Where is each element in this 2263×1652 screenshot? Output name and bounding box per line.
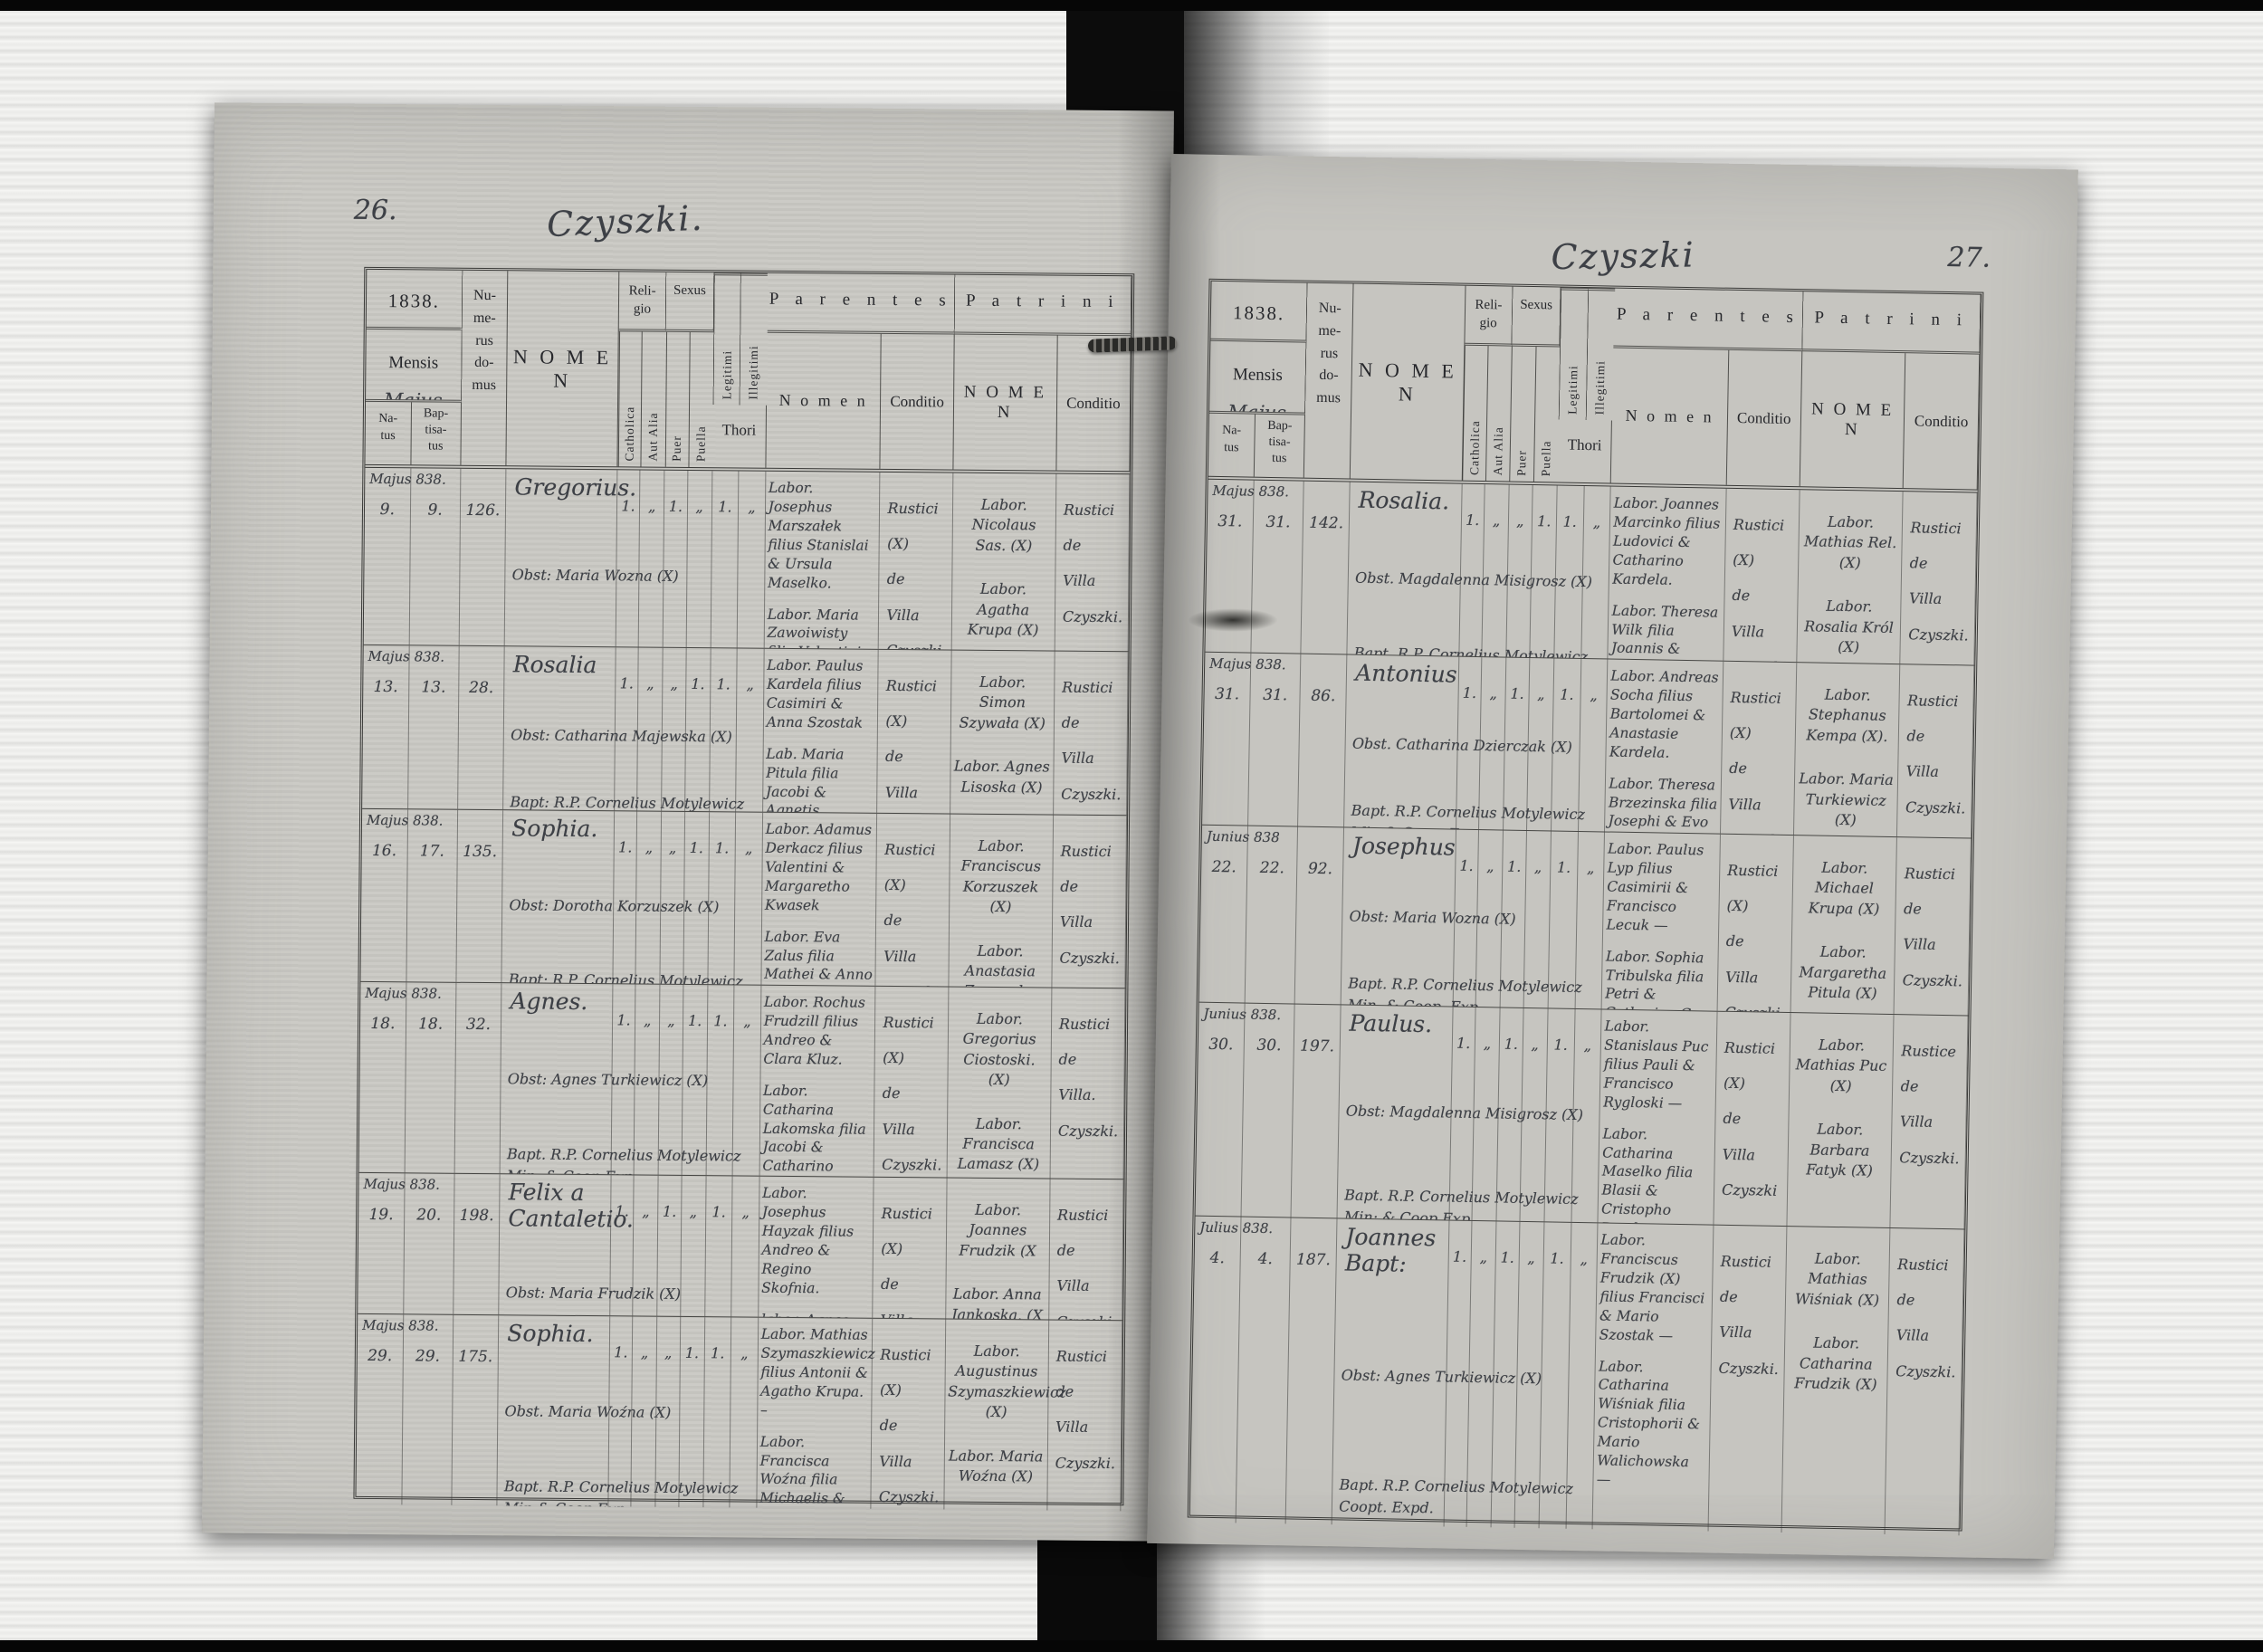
baptisatus-day-cell: 20. [403, 1173, 454, 1321]
book-spine-bottom-shadow [1157, 1526, 1265, 1652]
patrini-nomen-header: N O M E N [1800, 351, 1905, 488]
patrini-conditio-cell: Rustici de Villa Czyszki. [1886, 1228, 1964, 1535]
house-number-cell: 135. [456, 810, 504, 988]
mensis-value-handwritten: Majus [377, 389, 450, 403]
natus-day-cell: 30. [1196, 1003, 1246, 1230]
house-number-cell: 175. [452, 1315, 500, 1511]
puer-header: Puer [665, 332, 690, 467]
aut-alia-header: Aut Alia [1485, 346, 1513, 481]
nomen-cell: Sophia. Obst: Dorotha Korzuszek (X) Bapt… [501, 810, 615, 988]
tick-legitimi: 1. [711, 471, 740, 652]
baptisatus-day-cell: 29. [402, 1314, 454, 1511]
mensis-header: Mensis Majus [366, 329, 462, 403]
nomen-cell: Paulus. Obst: Magdalenna Misigrosz (X) B… [1337, 1005, 1453, 1229]
child-name: Rosalia [508, 648, 613, 679]
mensis-label: Mensis [1210, 365, 1306, 387]
child-name: Felix a Cantaletio. [502, 1176, 607, 1233]
religio-header: Reli- gio [1465, 286, 1513, 347]
patrini-conditio-cell: Rustici de Villa Czyszki. [1895, 837, 1972, 1016]
father-entry: Labor. Franciscus Frudzik (X) filius Fra… [1599, 1230, 1710, 1346]
scan-bottom-edge [0, 1640, 2263, 1652]
natus-day-cell: 18. [359, 982, 407, 1179]
table-header: 1838. Mensis Majus Na- tus Bap- tisa- tu… [1208, 282, 1981, 493]
illegitimi-header: Illegitimi [740, 272, 768, 405]
father-entry: Labor. Mathias Szymaszkiewicz filius Ant… [760, 1325, 870, 1421]
natus-day-cell: 4. [1190, 1217, 1242, 1523]
midwife-entry: Obst: Agnes Turkiewicz (X) [1338, 1367, 1584, 1389]
godparent-2: Labor. Maria Woźna (X) [947, 1446, 1044, 1487]
godparent-2: Labor. Rosalia Król (X) [1800, 596, 1898, 658]
child-name: Agnes. [504, 985, 609, 1016]
parentes-header: P a r e n t e s [767, 273, 955, 335]
month-year-entry: Majus 838. [363, 1176, 509, 1193]
father-entry: Labor. Andreas Socha filius Bartolomei &… [1609, 667, 1720, 764]
house-number-cell: 142. [1301, 482, 1351, 666]
patrini-conditio-cell: Rustici de Villa Czyszki. [1055, 474, 1130, 653]
baptisatus-day-cell: 22. [1245, 826, 1298, 1017]
nomen-cell: Sophia. Obst. Maria Woźna (X) Bapt. R.P.… [497, 1315, 610, 1511]
religio-header: Reli- gio [619, 272, 667, 331]
parentes-nomen-cell: Labor. Paulus Kardela filius Casimiri & … [762, 649, 879, 816]
midwife-entry: Obst: Maria Frudzik (X) [502, 1284, 747, 1303]
page-number-right: 27. [1947, 242, 1991, 274]
natus-day-cell: 29. [356, 1314, 404, 1511]
tick-illegitimi: „ [737, 471, 766, 652]
godparent-1: Labor. Nicolaus Sas. (X) [955, 495, 1053, 557]
godparent-2: Labor. Agatha Krupa (X) [954, 579, 1052, 641]
child-name: Joannes Bapt: [1340, 1220, 1446, 1278]
house-number-cell: 197. [1291, 1005, 1341, 1230]
parentes-nomen-header: N o m e n [766, 333, 882, 469]
patrini-conditio-cell: Rustici de Villa. Czyszki. [1050, 988, 1125, 1180]
baptism-record-row: Majus 838. 29. 29. 175. Sophia. Obst. Ma… [356, 1314, 1122, 1511]
patrini-nomen-cell: Labor. Stephanus Kempa (X). Labor. Maria… [1793, 663, 1901, 838]
godparent-1: Labor. Simon Szywała (X) [954, 673, 1052, 734]
father-entry: Labor. Josephus Marszałek filius Stanisl… [768, 479, 877, 594]
baptisatus-day-cell: 31. [1251, 481, 1304, 666]
godparent-1: Labor. Mathias Puc (X) [1792, 1035, 1891, 1097]
patrini-nomen-cell: Labor. Mathias Rel. (X) Labor. Rosalia K… [1796, 490, 1904, 665]
godparent-1: Labor. Franciscus Korzuszek (X) [952, 836, 1050, 918]
register-page-left: 26. Czyszki. 1838. Mensis Majus Na- tus … [202, 102, 1174, 1541]
puella-header: Puella [1533, 347, 1560, 482]
midwife-entry: Obst. Magdalenna Misigrosz (X) [1351, 569, 1598, 591]
baptism-record-row: Majus 838. 19. 20. 198. Felix a Cantalet… [358, 1173, 1123, 1321]
midwife-entry: Obst: Catharina Majewska (X) [507, 726, 751, 745]
catholica-header: Catholica [617, 331, 642, 466]
parentes-conditio-cell: Rustici (X) de Villa Czyszki. [874, 987, 949, 1179]
baptisatus-day-cell: 17. [406, 809, 458, 988]
patrini-nomen-cell: Labor. Gregorius Ciostoski. (X) Labor. F… [947, 988, 1052, 1180]
mother-entry: Labor. Maria Zawoiwisty filia Valentini … [767, 605, 876, 652]
godparent-2: Labor. Barbara Fatyk (X) [1790, 1119, 1889, 1181]
patrini-conditio-cell: Rustici de Villa Czyszki. [1897, 664, 1974, 838]
parentes-conditio-cell: Rustici (X) de Villa Czyszki [1714, 1012, 1790, 1230]
month-year-entry: Majus 838. [367, 812, 512, 829]
godparent-1: Labor. Augustinus Szymaszkiewicz (X) [948, 1342, 1046, 1423]
child-name: Antonius [1350, 657, 1456, 689]
baptism-record-row: Julius 838. 4. 4. 187. Joannes Bapt: Obs… [1190, 1217, 1965, 1536]
register-page-right: 27. Czyszki 1838. Mensis Majus Na- tus B… [1147, 154, 2078, 1559]
parentes-conditio-cell: Rustici (X) de Villa Czyszki. [1717, 835, 1794, 1017]
baptisatus-day-cell: 30. [1241, 1004, 1295, 1230]
nomen-cell: Josephus Obst: Maria Wozna (X) Bapt. R.P… [1342, 827, 1456, 1016]
month-year-entry: Majus 838. [365, 985, 511, 1002]
child-name: Sophia. [501, 1317, 606, 1348]
midwife-entry: Obst: Maria Wozna (X) [509, 566, 753, 585]
nomen-cell: Antonius Obst. Catharina Dzierczak (X) B… [1344, 654, 1459, 838]
month-year-entry: Julius 838. [1199, 1219, 1346, 1238]
numerus-domus-header: Nu- me- rus do- mus [1304, 283, 1354, 479]
baptisatus-day-cell: 13. [407, 645, 459, 816]
baptism-record-row: Majus 838. 9. 9. 126. Gregorius. Obst: M… [364, 468, 1131, 652]
patrini-nomen-cell: Labor. Mathias Puc (X) Labor. Barbara Fa… [1787, 1013, 1895, 1229]
parentes-conditio-cell: Rustici (X) de Villa Czyszki. [1723, 489, 1800, 666]
nomen-header: N O M E N [507, 271, 619, 466]
month-year-entry: Majus 838. [1212, 482, 1359, 501]
father-entry: Labor. Joannes Marcinko filius Ludovici … [1612, 494, 1723, 591]
baptism-record-row: Junius 838. 30. 30. 197. Paulus. Obst: M… [1196, 1003, 1969, 1230]
house-number-cell: 187. [1286, 1218, 1338, 1524]
patrini-nomen-header: N O M E N [953, 335, 1057, 471]
parentes-conditio-header: Conditio [881, 334, 955, 470]
patrini-nomen-cell: Labor. Franciscus Korzuszek (X) Labor. A… [949, 815, 1054, 989]
patrini-conditio-header: Conditio [1904, 353, 1980, 489]
baptism-record-row: Majus 838. 31. 31. 86. Antonius Obst. Ca… [1202, 653, 1974, 839]
records-right: Majus 838. 31. 31. 142. Rosalia. Obst. M… [1190, 480, 1978, 1536]
baptizer-entry: Bapt. R.P. Cornelius Motylewicz Coopt. E… [1335, 1474, 1613, 1522]
ink-smudge [1188, 608, 1278, 632]
midwife-entry: Obst: Dorotha Korzuszek (X) [505, 897, 750, 916]
midwife-entry: Obst. Catharina Dzierczak (X) [1349, 734, 1595, 756]
patrini-nomen-cell: Labor. Mathias Wiśniak (X) Labor. Cathar… [1781, 1227, 1891, 1534]
natus-header: Na- tus [1208, 414, 1256, 477]
parentes-conditio-header: Conditio [1727, 350, 1802, 486]
patrini-conditio-cell: Rustici de Villa Czyszki. [1054, 652, 1129, 816]
child-name: Rosalia. [1352, 484, 1458, 516]
mensis-label: Mensis [366, 353, 461, 374]
patrini-nomen-cell: Labor. Joannes Frudzik (X Labor. Anna Ja… [945, 1179, 1050, 1322]
baptisatus-day-cell: 9. [409, 468, 461, 652]
patrini-header: P a t r i n i [954, 275, 1131, 337]
child-name: Sophia. [506, 812, 611, 843]
scan-top-edge [0, 0, 2263, 11]
godparent-2: Labor. Maria Turkiewicz (X) [1797, 769, 1895, 831]
thori-header: Thori [712, 405, 767, 468]
page-title-left: Czyszki. [546, 198, 704, 245]
nomen-cell: Joannes Bapt: Obst: Agnes Turkiewicz (X)… [1332, 1218, 1449, 1526]
month-year-entry: Junius 838. [1203, 1006, 1350, 1025]
child-name: Josephus [1347, 830, 1453, 862]
child-name: Paulus. [1343, 1007, 1449, 1038]
sexus-header: Sexus [1513, 287, 1561, 348]
godparent-2: Labor. Francisca Lamasz (X) [950, 1113, 1047, 1175]
tick-puer: 1. [663, 471, 688, 652]
baptism-record-row: Junius 838 22. 22. 92. Josephus Obst: Ma… [1199, 826, 1972, 1017]
mensis-header: Mensis Majus [1209, 341, 1307, 415]
godparent-1: Labor. Joannes Frudzik (X [949, 1200, 1046, 1262]
godparent-2: Labor. Catharina Frudzik (X) [1787, 1332, 1886, 1395]
nomen-header: N O M E N [1351, 284, 1466, 481]
house-number-cell: 92. [1295, 827, 1345, 1017]
month-year-entry: Majus 838. [362, 1317, 508, 1334]
page-number-left: 26. [354, 195, 397, 226]
godparent-1: Labor. Mathias Wiśniak (X) [1788, 1248, 1886, 1311]
baptisatus-day-cell: 18. [405, 982, 456, 1179]
house-number-cell: 32. [454, 983, 502, 1179]
sexus-header: Sexus [666, 272, 714, 332]
thori-header: Thori [1558, 420, 1613, 483]
aut-alia-header: Aut Alia [641, 332, 666, 467]
godparent-1: Labor. Mathias Rel. (X) [1801, 511, 1900, 574]
patrini-header: P a t r i n i [1802, 291, 1981, 354]
baptisatus-header: Bap- tisa- tus [1255, 415, 1305, 478]
book-spine-bottom [1037, 1526, 1157, 1652]
baptism-record-row: Majus 838. 31. 31. 142. Rosalia. Obst. M… [1205, 480, 1977, 666]
baptisatus-day-cell: 4. [1237, 1218, 1292, 1524]
nomen-cell: Rosalia Obst: Catharina Majewska (X) Bap… [503, 646, 616, 816]
natus-day-cell: 31. [1202, 653, 1251, 839]
patrini-nomen-cell: Labor. Nicolaus Sas. (X) Labor. Agatha K… [951, 473, 1056, 653]
numerus-domus-header: Nu- me- rus do- mus [461, 271, 509, 465]
midwife-entry: Obst: Agnes Turkiewicz (X) [504, 1071, 749, 1090]
month-year-entry: Majus 838. [369, 471, 515, 488]
midwife-entry: Obst: Magdalenna Misigrosz (X) [1342, 1102, 1589, 1123]
parentes-nomen-cell: Labor. Joannes Marcinko filius Ludovici … [1608, 487, 1727, 666]
puella-header: Puella [688, 332, 713, 467]
father-entry: Labor. Josephus Hayzak filius Andreo & R… [761, 1184, 871, 1299]
parentes-nomen-cell: Labor. Josephus Hayzak filius Andreo & R… [758, 1177, 874, 1322]
puer-header: Puer [1510, 347, 1535, 482]
year-header: 1838. [1210, 282, 1307, 343]
records-left: Majus 838. 9. 9. 126. Gregorius. Obst: M… [356, 468, 1130, 1511]
illegitimi-header: Illegitimi [1586, 288, 1615, 420]
godparent-1: Labor. Michael Krupa (X) [1795, 857, 1894, 920]
year-header: 1838. [367, 270, 463, 330]
mother-entry: Labor. Catharina Wiśniak filia Cristopho… [1597, 1357, 1708, 1492]
patrini-nomen-cell: Labor. Michael Krupa (X) Labor. Margaret… [1790, 836, 1898, 1016]
nomen-cell: Gregorius. Obst: Maria Wozna (X) Bapt. R… [504, 469, 617, 652]
natus-day-cell: 22. [1199, 826, 1248, 1017]
father-entry: Labor. Paulus Kardela filius Casimiri & … [767, 656, 875, 733]
parentes-conditio-cell: Rustici (X) de Villa Czyszki. [1720, 662, 1797, 839]
house-number-cell: 86. [1298, 654, 1348, 839]
father-entry: Labor. Paulus Lyp filius Casimirii & Fra… [1606, 840, 1716, 937]
baptisatus-header: Bap- tisa- tus [411, 402, 462, 464]
month-year-entry: Junius 838 [1207, 828, 1353, 847]
parentes-conditio-cell: Rustici (X) de Villa Czyszki. [872, 1319, 946, 1511]
midwife-entry: Obst. Maria Woźna (X) [501, 1403, 746, 1422]
patrini-conditio-cell: Rustice de Villa Czyszki. [1890, 1015, 1968, 1229]
father-entry: Labor. Rochus Frudzill filius Andreo & C… [763, 993, 872, 1070]
month-year-entry: Majus 838. [368, 648, 514, 665]
natus-day-cell: 16. [360, 809, 407, 988]
legitimi-header: Legitimi [1559, 288, 1588, 420]
patrini-nomen-cell: Labor. Simon Szywała (X) Labor. Agnes Li… [950, 651, 1055, 816]
godparent-2: Labor. Margaretha Pitula (X) [1793, 941, 1892, 1004]
godparent-2: Labor. Anna Jankoska. (X [949, 1284, 1046, 1322]
legitimi-header: Legitimi [713, 272, 741, 405]
parentes-nomen-cell: Labor. Adamus Derkacz filius Valentini &… [761, 813, 878, 989]
natus-header: Na- tus [365, 402, 411, 464]
tick-puella: „ [686, 471, 712, 652]
house-number-cell: 126. [459, 469, 507, 652]
catholica-header: Catholica [1462, 346, 1487, 481]
parentes-conditio-cell: Rustici (X) de Villa Czyszki [876, 814, 950, 988]
godparent-1: Labor. Gregorius Ciostoski. (X) [950, 1009, 1048, 1091]
godparent-2: Labor. Agnes Lisoska (X) [953, 757, 1050, 798]
father-entry: Labor. Stanislaus Puc filius Pauli & Fra… [1603, 1017, 1714, 1114]
baptism-record-row: Majus 838. 16. 17. 135. Sophia. Obst: Do… [360, 809, 1127, 988]
baptizer-entry: Bapt. R.P. Cornelius Motylewicz Min & Co… [501, 1475, 777, 1511]
parentes-nomen-header: N o m e n [1611, 349, 1729, 485]
patrini-nomen-cell: Labor. Augustinus Szymaszkiewicz (X) Lab… [944, 1320, 1049, 1512]
house-number-cell: 28. [457, 646, 505, 816]
patrini-conditio-header: Conditio [1056, 336, 1131, 472]
patrini-conditio-cell: Rustici de Villa Czyszki. [1048, 1179, 1123, 1322]
parentes-conditio-cell: Rustici (X) de Villa Czyszki [873, 1178, 947, 1321]
tick-aut-alia: „ [638, 471, 664, 653]
patrini-conditio-cell: Rustici de Villa Czyszki. [1900, 492, 1978, 665]
nomen-cell: Felix a Cantaletio. Obst: Maria Frudzik … [499, 1174, 612, 1321]
child-name: Gregorius. [509, 471, 614, 501]
baptism-table-left: 1838. Mensis Majus Na- tus Bap- tisa- tu… [353, 267, 1134, 1505]
baptisatus-day-cell: 31. [1248, 654, 1302, 839]
patrini-conditio-cell: Rustici de Villa Czyszki. [1047, 1321, 1122, 1512]
godparent-1: Labor. Stephanus Kempa (X). [1798, 684, 1896, 747]
parentes-nomen-cell: Labor. Josephus Marszałek filius Stanisl… [764, 472, 881, 653]
midwife-entry: Obst: Maria Wozna (X) [1345, 907, 1591, 929]
natus-day-cell: 9. [364, 468, 411, 652]
parentes-conditio-cell: Rustici de Villa Czyszki. [1708, 1226, 1787, 1533]
page-title-right: Czyszki [1551, 234, 1695, 277]
natus-day-cell: 13. [362, 645, 409, 816]
parentes-header: P a r e n t e s [1614, 289, 1803, 352]
nomen-cell: Agnes. Obst: Agnes Turkiewicz (X) Bapt. … [501, 983, 614, 1179]
patrini-conditio-cell: Rustici de Villa Czyszki. [1052, 816, 1127, 989]
house-number-cell: 198. [453, 1174, 501, 1321]
natus-day-cell: 31. [1205, 480, 1254, 666]
baptism-record-row: Majus 838. 13. 13. 28. Rosalia Obst: Cat… [362, 645, 1129, 816]
month-year-entry: Majus 838. [1209, 655, 1356, 674]
natus-day-cell: 19. [358, 1173, 405, 1321]
father-entry: Labor. Adamus Derkacz filius Valentini &… [765, 820, 874, 916]
baptism-record-row: Majus 838. 18. 18. 32. Agnes. Obst: Agne… [359, 982, 1126, 1179]
table-header: 1838. Mensis Majus Na- tus Bap- tisa- tu… [365, 270, 1131, 474]
parentes-conditio-cell: Rustici (X) de Villa Czyszki. [877, 650, 951, 816]
nomen-cell: Rosalia. Obst. Magdalenna Misigrosz (X) … [1347, 482, 1462, 666]
godparent-2: Labor. Anastasia Zaworska (X) [951, 941, 1049, 988]
parentes-conditio-cell: Rustici (X) de Villa Czyszki. [879, 473, 953, 652]
baptism-table-right: 1838. Mensis Majus Na- tus Bap- tisa- tu… [1188, 279, 1984, 1532]
